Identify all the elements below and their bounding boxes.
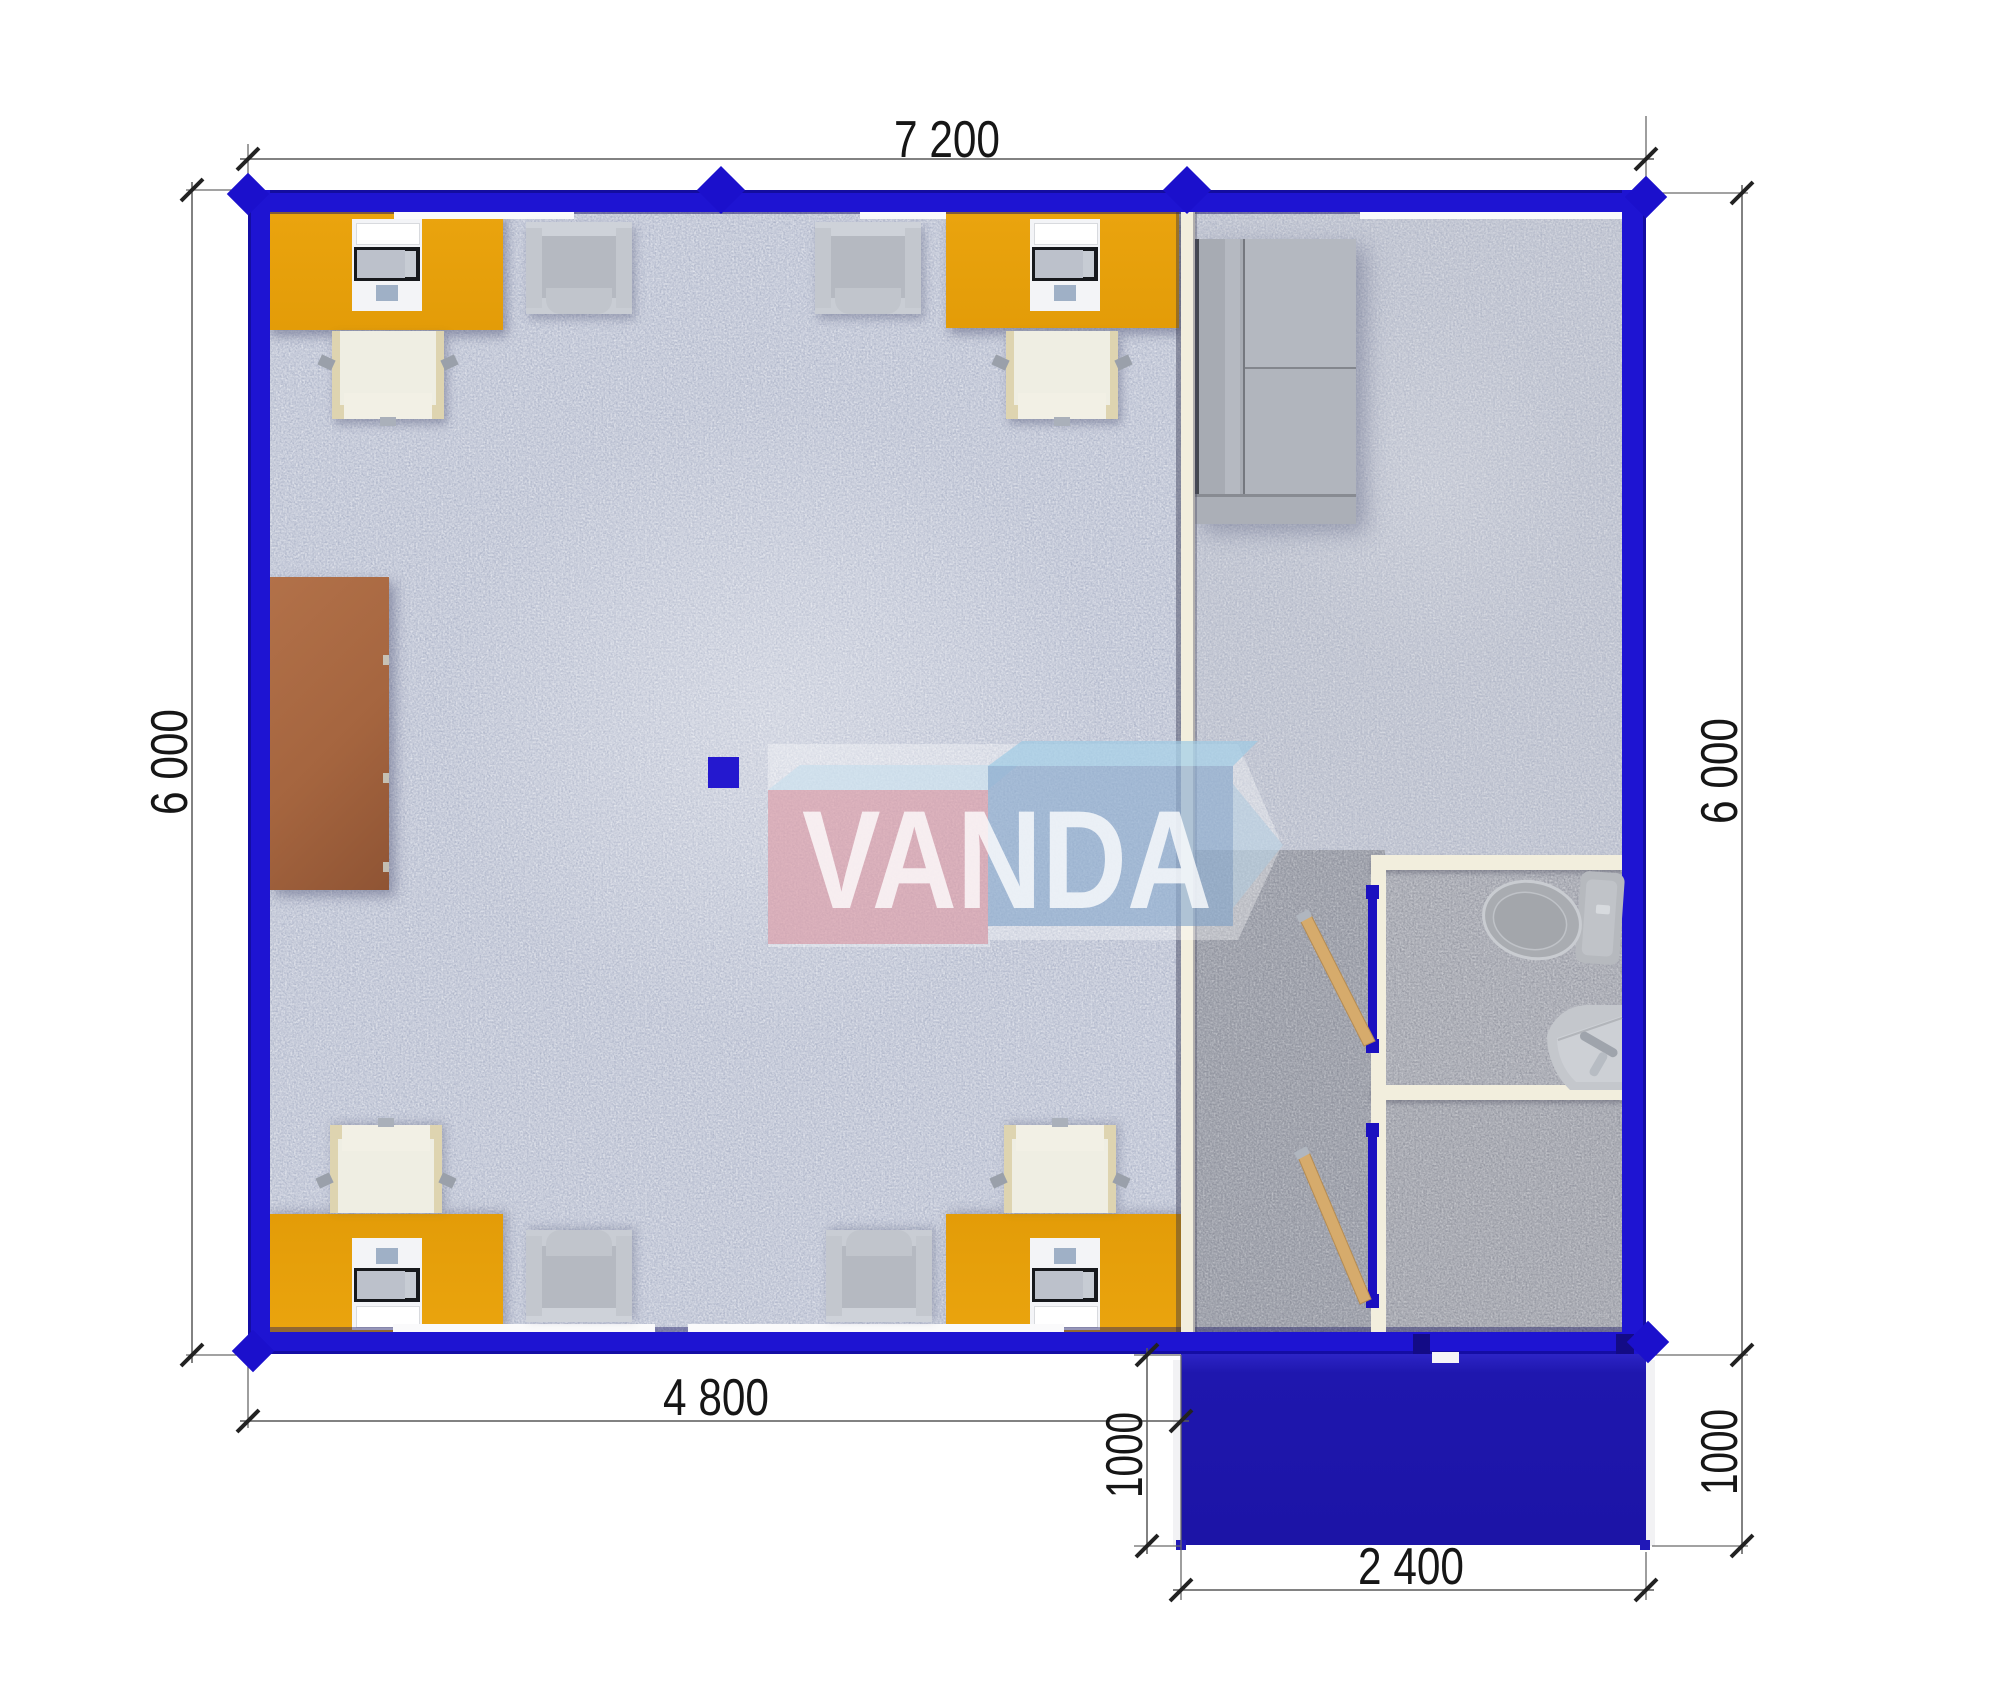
svg-text:4 800: 4 800	[663, 1369, 769, 1427]
svg-text:7 200: 7 200	[894, 111, 1000, 169]
svg-text:VANDA: VANDA	[802, 781, 1212, 938]
svg-text:1000: 1000	[1691, 1409, 1749, 1495]
svg-text:2 400: 2 400	[1358, 1538, 1464, 1596]
svg-text:6 000: 6 000	[1691, 718, 1749, 824]
svg-text:6 000: 6 000	[141, 709, 199, 815]
svg-text:1000: 1000	[1096, 1412, 1154, 1498]
